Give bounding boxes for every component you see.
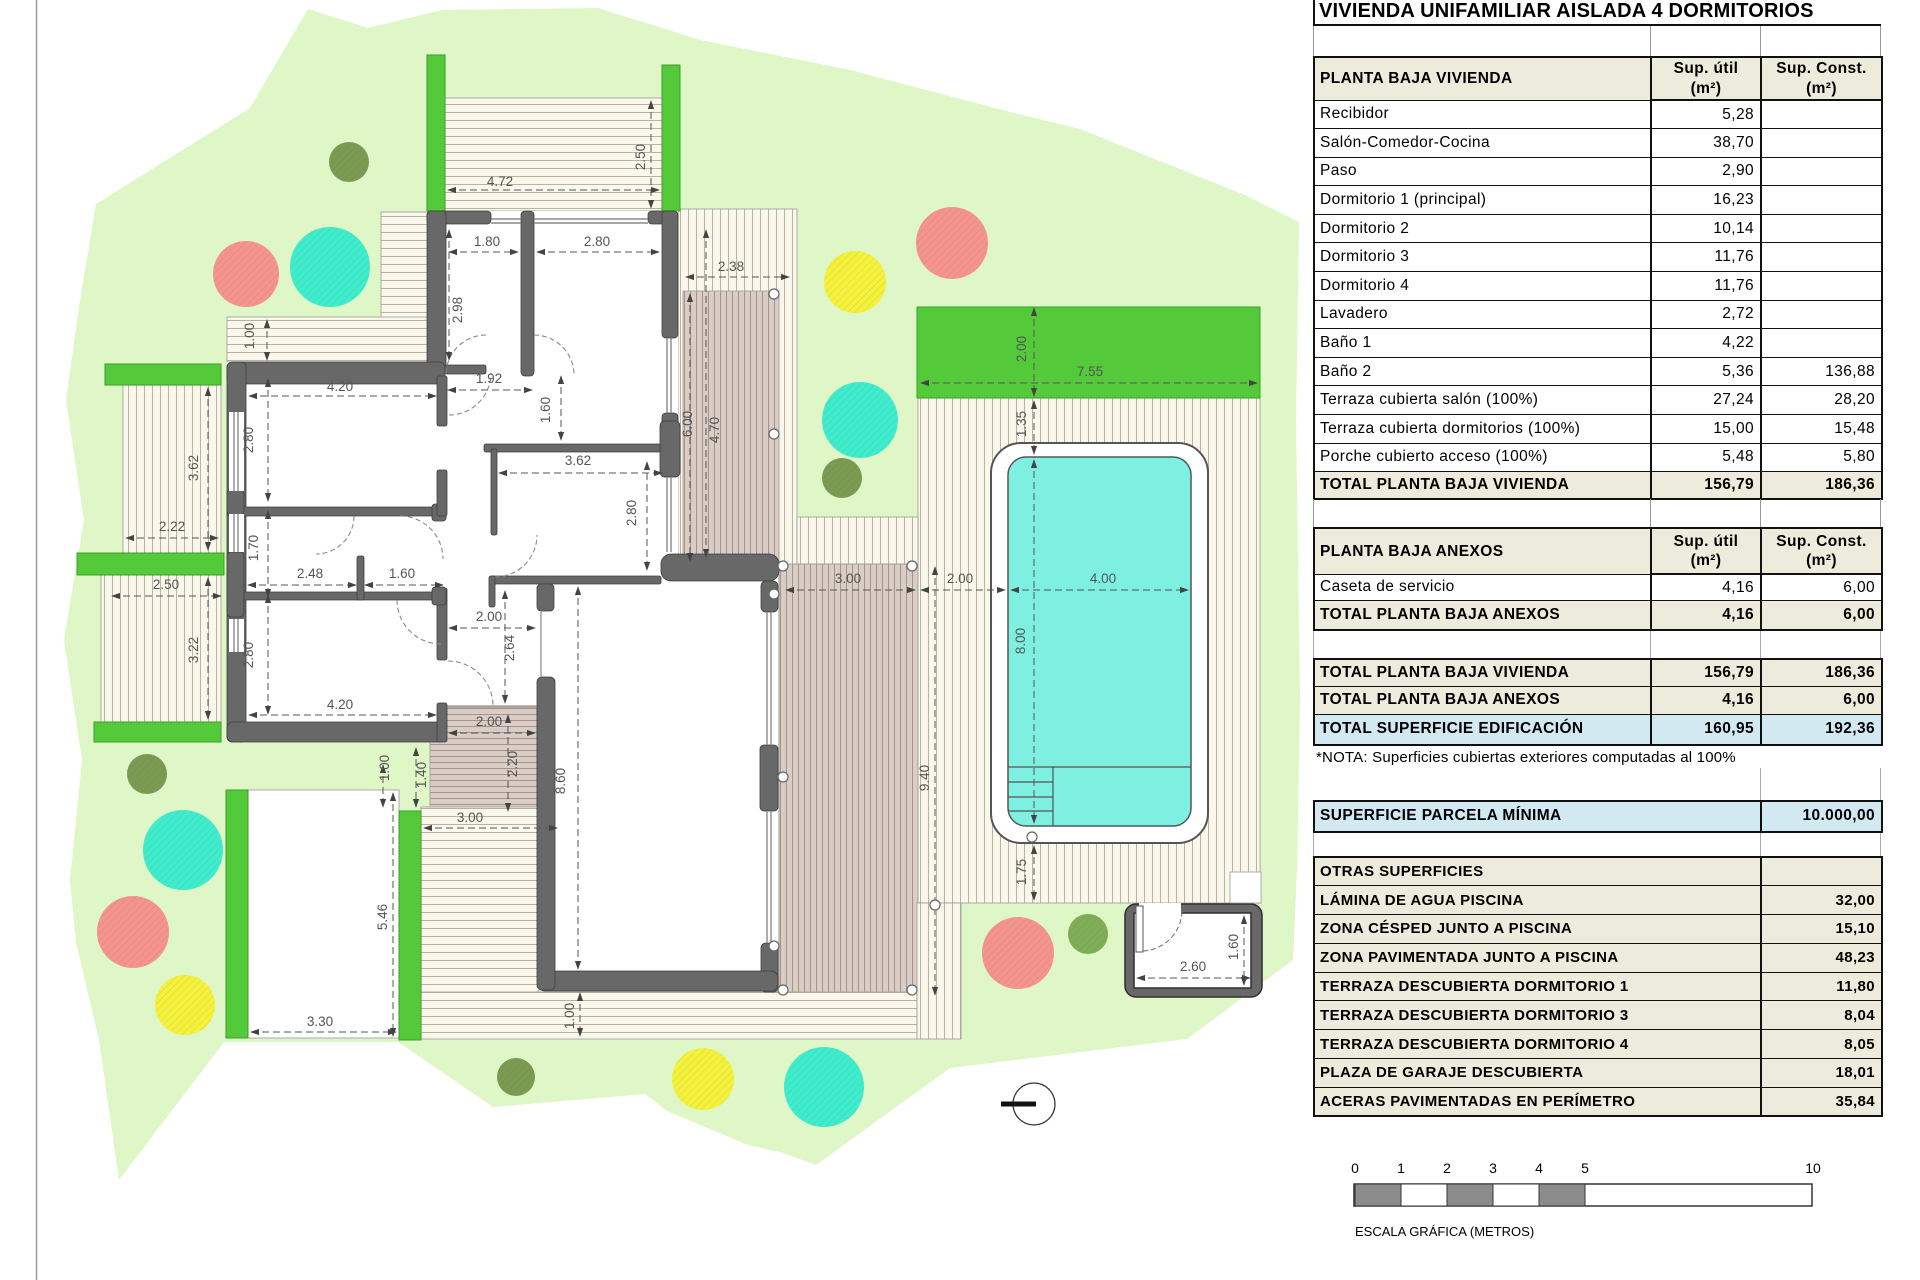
- svg-text:3.22: 3.22: [186, 637, 201, 663]
- svg-text:2.60: 2.60: [1180, 959, 1206, 974]
- svg-text:3.00: 3.00: [457, 810, 483, 825]
- svg-text:2.80: 2.80: [584, 234, 610, 249]
- svg-text:2.22: 2.22: [159, 519, 185, 534]
- svg-text:1.00: 1.00: [242, 323, 257, 349]
- svg-text:1.35: 1.35: [1014, 411, 1029, 437]
- svg-text:4.20: 4.20: [327, 379, 353, 394]
- svg-text:2.98: 2.98: [450, 297, 465, 323]
- svg-text:9.40: 9.40: [917, 765, 932, 791]
- svg-text:1.70: 1.70: [246, 535, 261, 561]
- svg-text:5.46: 5.46: [375, 904, 390, 930]
- svg-text:4.70: 4.70: [707, 417, 722, 443]
- svg-text:1.40: 1.40: [414, 762, 429, 788]
- svg-text:8.00: 8.00: [1013, 628, 1028, 654]
- svg-text:4.00: 4.00: [1090, 571, 1116, 586]
- svg-text:2.64: 2.64: [502, 634, 517, 661]
- svg-text:3.62: 3.62: [186, 455, 201, 481]
- svg-text:1.60: 1.60: [538, 397, 553, 423]
- svg-text:1.75: 1.75: [1014, 859, 1029, 885]
- svg-text:3.62: 3.62: [565, 453, 591, 468]
- svg-text:1.80: 1.80: [474, 234, 500, 249]
- svg-text:2.00: 2.00: [476, 609, 502, 624]
- svg-text:2.38: 2.38: [718, 259, 744, 274]
- svg-text:2.20: 2.20: [505, 751, 520, 777]
- svg-text:1.92: 1.92: [476, 371, 502, 386]
- svg-text:3.00: 3.00: [835, 571, 861, 586]
- svg-text:6.00: 6.00: [680, 411, 695, 437]
- svg-text:1.60: 1.60: [1226, 934, 1241, 960]
- svg-text:2.50: 2.50: [153, 577, 179, 592]
- svg-text:1.00: 1.00: [377, 755, 392, 781]
- svg-text:2.80: 2.80: [241, 642, 256, 668]
- svg-text:1.60: 1.60: [389, 566, 415, 581]
- svg-text:2.80: 2.80: [241, 427, 256, 453]
- svg-text:7.55: 7.55: [1077, 364, 1103, 379]
- svg-text:2.00: 2.00: [1014, 336, 1029, 362]
- svg-text:2.80: 2.80: [624, 500, 639, 526]
- svg-text:2.48: 2.48: [297, 566, 323, 581]
- svg-text:1.00: 1.00: [562, 1003, 577, 1029]
- svg-text:2.00: 2.00: [476, 714, 502, 729]
- svg-text:8.60: 8.60: [553, 768, 568, 794]
- svg-text:4.72: 4.72: [487, 174, 513, 189]
- svg-text:3.30: 3.30: [307, 1014, 333, 1029]
- svg-text:2.00: 2.00: [947, 571, 973, 586]
- svg-text:4.20: 4.20: [327, 697, 353, 712]
- svg-text:2.50: 2.50: [633, 144, 648, 170]
